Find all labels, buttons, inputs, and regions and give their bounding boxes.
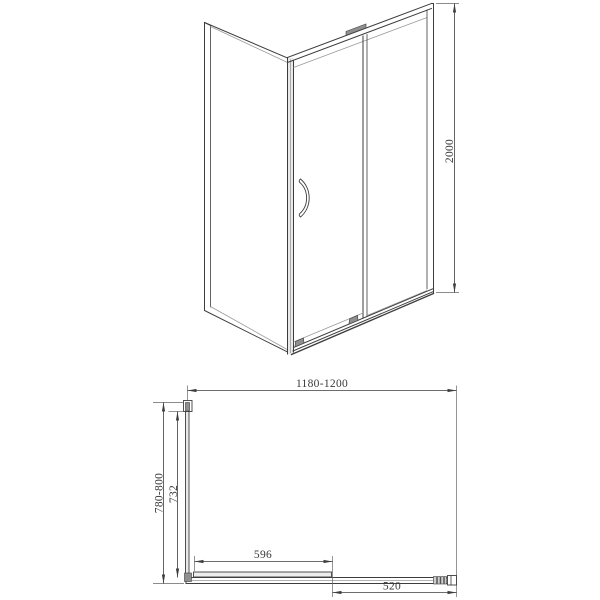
side-panel bbox=[205, 23, 292, 355]
sliding-door-edge bbox=[363, 35, 367, 319]
front-view: 2000 bbox=[205, 4, 460, 355]
wall-profile-left bbox=[184, 401, 193, 412]
door-handle bbox=[299, 179, 309, 217]
opening-dimension-label: 520 bbox=[383, 581, 401, 593]
width-dimension: 1180-1200 bbox=[188, 378, 457, 400]
door-panel-dimension-label: 596 bbox=[254, 549, 272, 561]
top-rail bbox=[288, 4, 432, 68]
plan-corner-connector bbox=[185, 573, 192, 582]
wall-profile-right bbox=[434, 576, 457, 586]
drawing-canvas: 2000 1180-1200 780-800 732 bbox=[0, 0, 600, 600]
height-dimension-label: 2000 bbox=[444, 139, 456, 163]
shower-enclosure-technical-drawing: 2000 1180-1200 780-800 732 bbox=[0, 0, 600, 600]
glass-depth-dimension: 732 bbox=[168, 412, 184, 578]
plan-side-panel bbox=[186, 412, 190, 578]
plan-sliding-door-panel bbox=[194, 572, 332, 577]
corner-post bbox=[288, 58, 294, 354]
height-dimension: 2000 bbox=[436, 4, 459, 293]
width-dimension-label: 1180-1200 bbox=[296, 378, 348, 390]
depth-dimension-label: 780-800 bbox=[154, 473, 166, 513]
glass-depth-dimension-label: 732 bbox=[168, 485, 180, 503]
plan-track bbox=[186, 578, 456, 584]
plan-view: 1180-1200 780-800 732 bbox=[153, 378, 457, 597]
right-post bbox=[427, 4, 434, 293]
